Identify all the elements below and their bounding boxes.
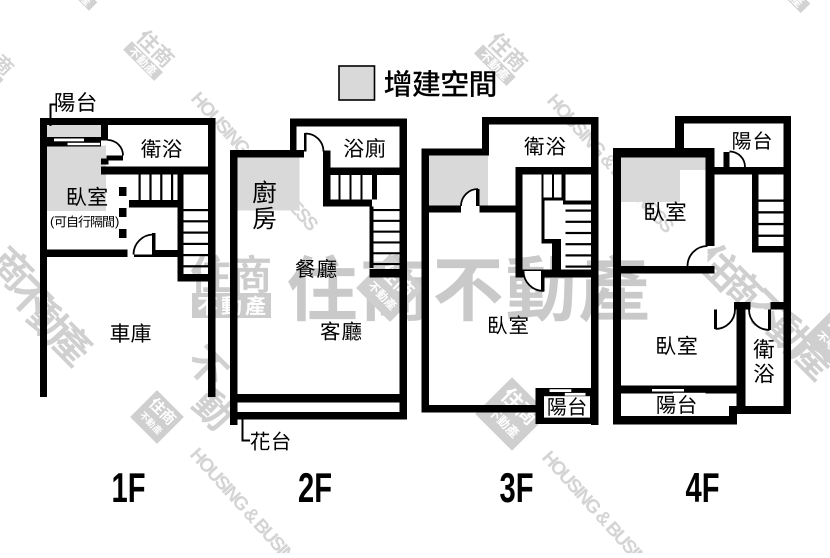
svg-text:1F: 1F <box>112 464 146 511</box>
svg-text:2F: 2F <box>298 464 332 511</box>
svg-text:3F: 3F <box>500 464 534 511</box>
svg-text:(: ( <box>50 214 55 229</box>
svg-text:4F: 4F <box>686 464 720 511</box>
svg-text:): ) <box>115 214 119 229</box>
